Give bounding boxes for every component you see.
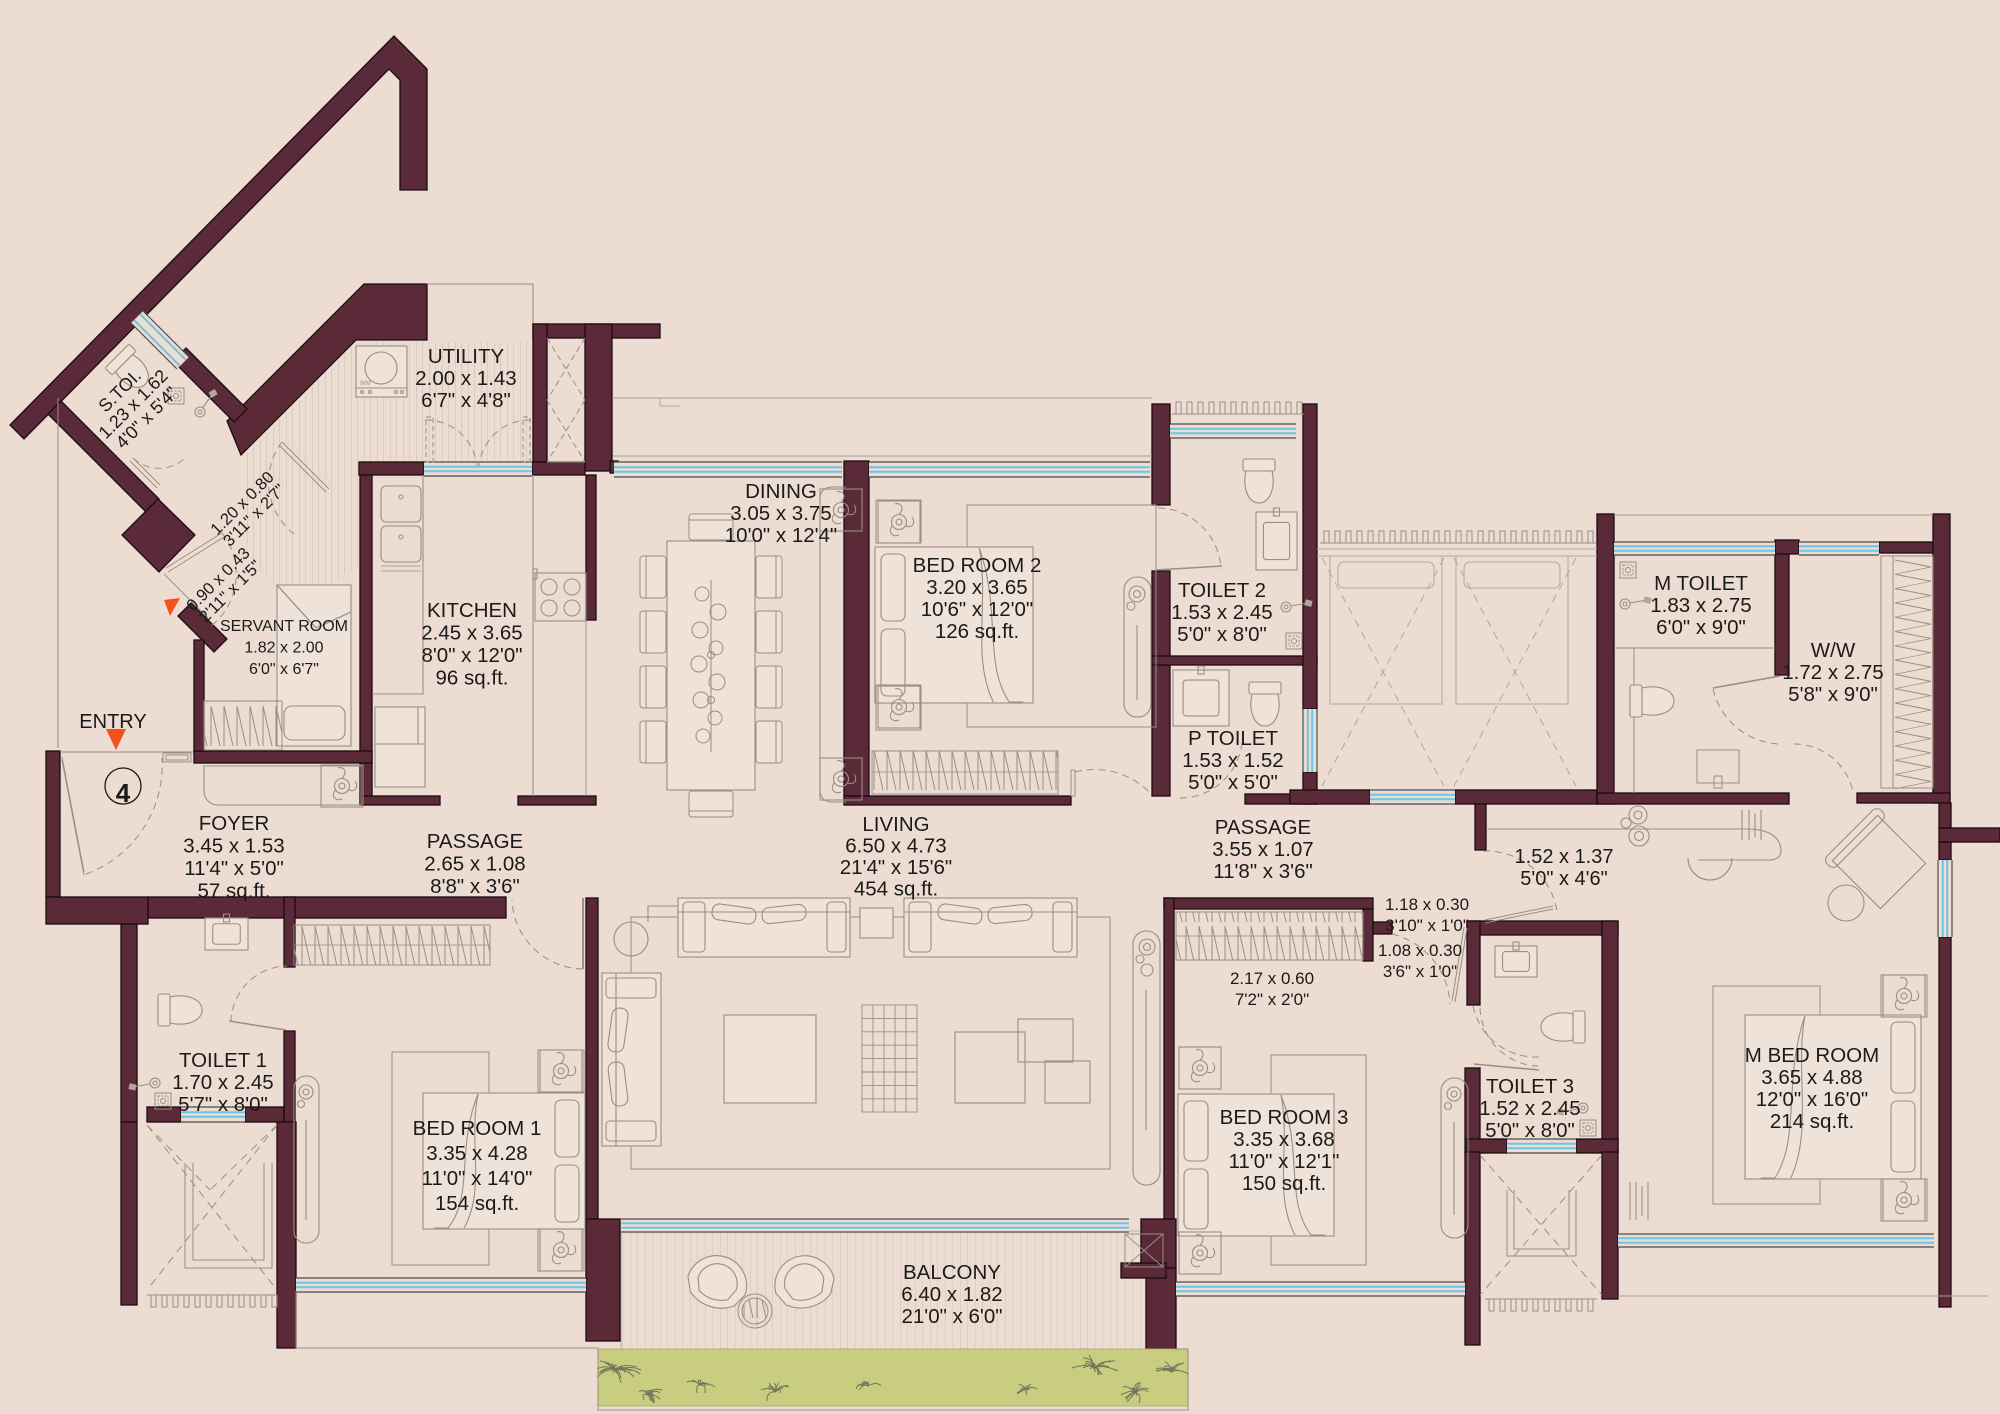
svg-text:P TOILET1.53 x 1.525'0" x 5'0": P TOILET1.53 x 1.525'0" x 5'0" (1182, 727, 1283, 794)
svg-text:PASSAGE3.55 x 1.0711'8" x 3'6": PASSAGE3.55 x 1.0711'8" x 3'6" (1212, 816, 1313, 883)
svg-text:PASSAGE2.65 x 1.088'8" x 3'6": PASSAGE2.65 x 1.088'8" x 3'6" (424, 830, 525, 898)
svg-text:4: 4 (116, 778, 131, 808)
svg-text:KITCHEN2.45 x 3.658'0" x 12'0": KITCHEN2.45 x 3.658'0" x 12'0"96 sq.ft. (421, 599, 522, 690)
svg-text:UTILITY2.00 x 1.436'7" x 4'8": UTILITY2.00 x 1.436'7" x 4'8" (415, 345, 516, 412)
svg-text:M TOILET1.83 x 2.756'0" x 9'0": M TOILET1.83 x 2.756'0" x 9'0" (1650, 572, 1751, 639)
svg-text:TOILET 31.52 x 2.455'0" x 8'0": TOILET 31.52 x 2.455'0" x 8'0" (1479, 1075, 1580, 1142)
svg-text:TOILET 11.70 x 2.455'7" x 8'0": TOILET 11.70 x 2.455'7" x 8'0" (172, 1049, 273, 1116)
svg-text:ENTRY: ENTRY (79, 711, 146, 733)
svg-text:WM: WM (360, 381, 371, 387)
svg-text:1.52 x 1.375'0" x 4'6": 1.52 x 1.375'0" x 4'6" (1515, 846, 1614, 890)
svg-text:TOILET 21.53 x 2.455'0" x 8'0": TOILET 21.53 x 2.455'0" x 8'0" (1171, 579, 1272, 646)
svg-text:BALCONY6.40 x 1.8221'0" x 6'0": BALCONY6.40 x 1.8221'0" x 6'0" (901, 1261, 1002, 1328)
